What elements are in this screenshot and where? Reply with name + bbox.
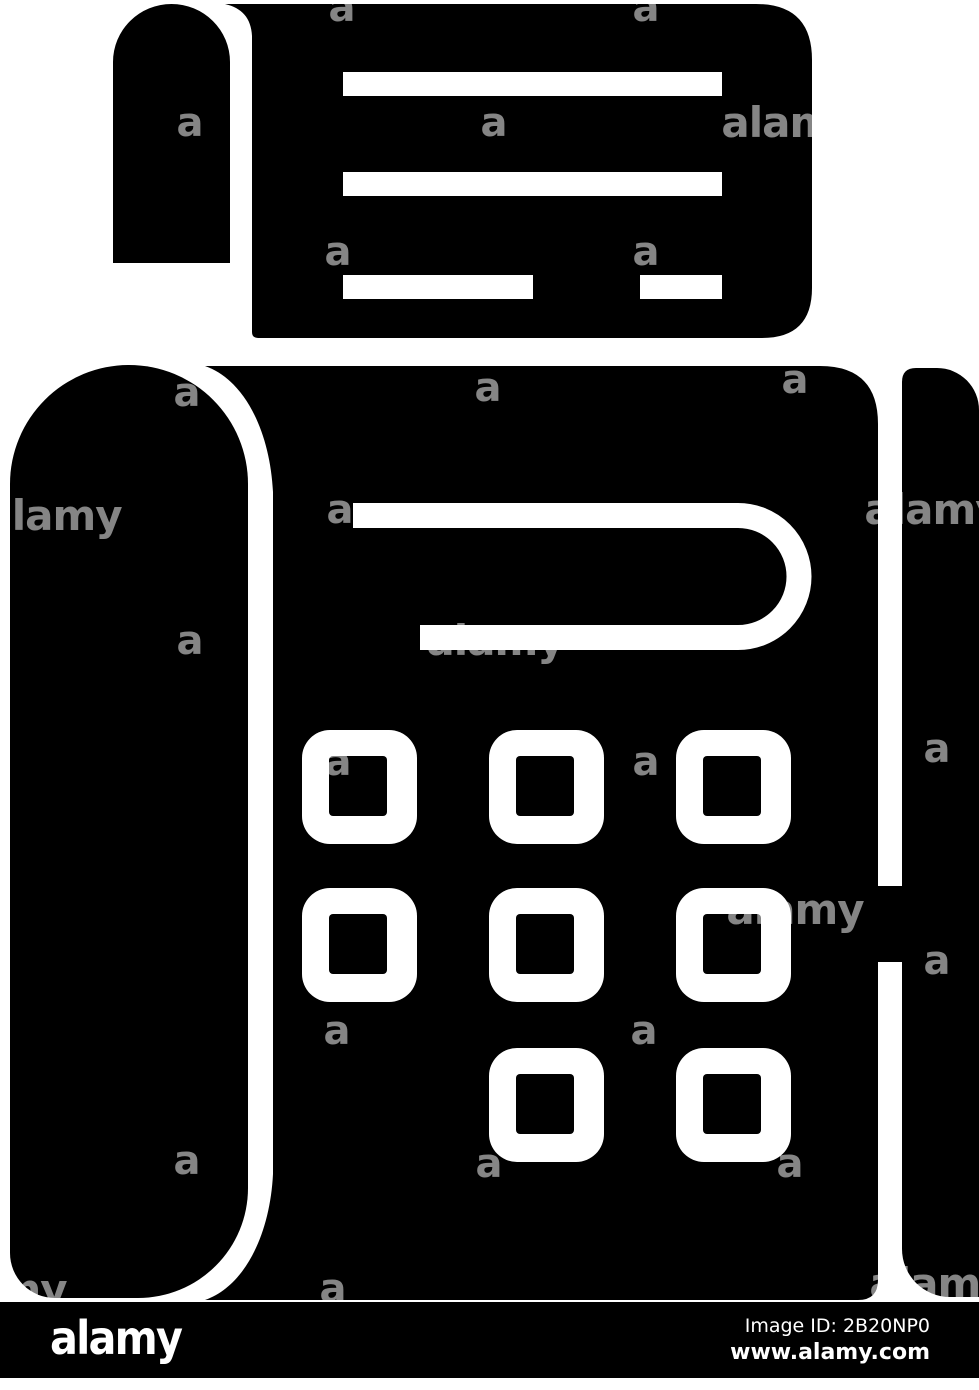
image-id-text: Image ID: 2B20NP0: [730, 1315, 930, 1337]
keypad-button: [676, 1048, 791, 1162]
keypad-button: [302, 730, 417, 844]
keypad-button: [676, 730, 791, 844]
keypad-button: [676, 888, 791, 1002]
keypad-button: [489, 888, 604, 1002]
document-text-line-3a: [343, 275, 533, 299]
paper-roll-strip: [902, 368, 979, 1297]
document-text-line-3b: [640, 275, 722, 299]
keypad-button: [302, 888, 417, 1002]
phone-handset: [10, 365, 248, 1298]
keypad-button: [489, 1048, 604, 1162]
paper-curl-tab: [113, 4, 230, 263]
stock-image-page: aaaaaaaaaaaaaaaaaaaaaalamyalamyalamyalam…: [0, 0, 979, 1390]
document-text-line-1: [343, 72, 722, 96]
fax-machine-icon: [0, 0, 979, 1390]
keypad-button: [489, 730, 604, 844]
footer-bar: alamy Image ID: 2B20NP0 www.alamy.com: [0, 1302, 979, 1378]
alamy-logo: alamy: [50, 1311, 181, 1365]
document-text-line-2: [343, 172, 722, 196]
footer-info: Image ID: 2B20NP0 www.alamy.com: [730, 1315, 930, 1365]
alamy-url-text: www.alamy.com: [730, 1340, 930, 1365]
